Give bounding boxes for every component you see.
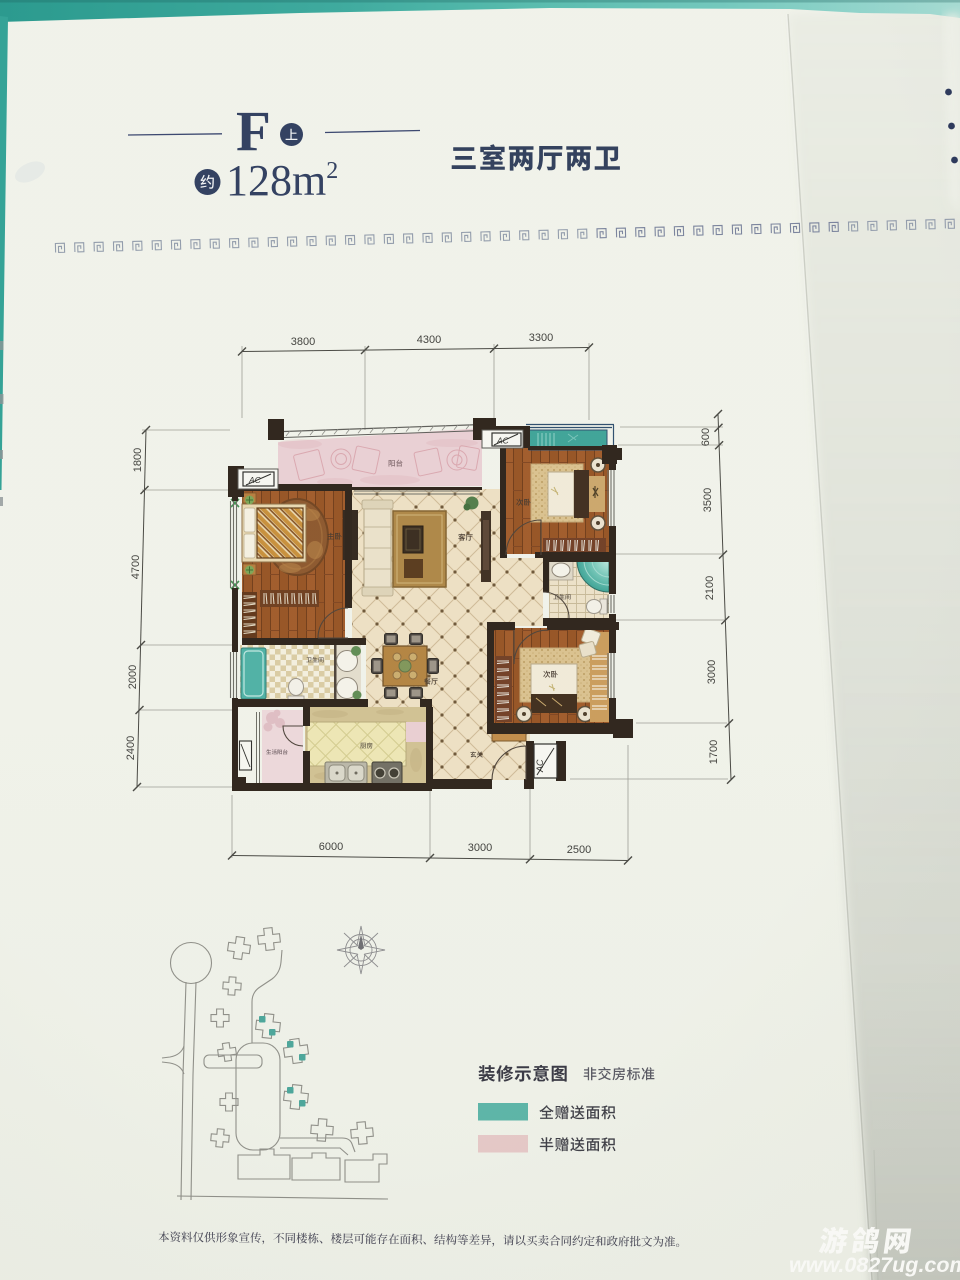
svg-text:4300: 4300: [417, 334, 441, 346]
svg-text:3000: 3000: [468, 842, 492, 854]
svg-text:2100: 2100: [704, 576, 716, 600]
svg-text:6000: 6000: [319, 841, 343, 853]
svg-text:3500: 3500: [702, 488, 714, 512]
svg-text:2500: 2500: [567, 844, 591, 856]
svg-text:www.0827ug.com: www.0827ug.com: [789, 1253, 960, 1277]
svg-text:1800: 1800: [132, 448, 144, 472]
svg-text:4700: 4700: [130, 555, 142, 579]
svg-text:2400: 2400: [125, 736, 137, 760]
svg-text:3800: 3800: [291, 336, 315, 348]
svg-text:2000: 2000: [127, 665, 139, 689]
svg-text:128m2: 128m2: [226, 156, 338, 205]
svg-text:F: F: [236, 100, 271, 163]
svg-text:1700: 1700: [708, 740, 720, 764]
svg-text:600: 600: [700, 428, 712, 446]
svg-text:3300: 3300: [529, 332, 553, 344]
svg-text:3000: 3000: [706, 660, 718, 684]
